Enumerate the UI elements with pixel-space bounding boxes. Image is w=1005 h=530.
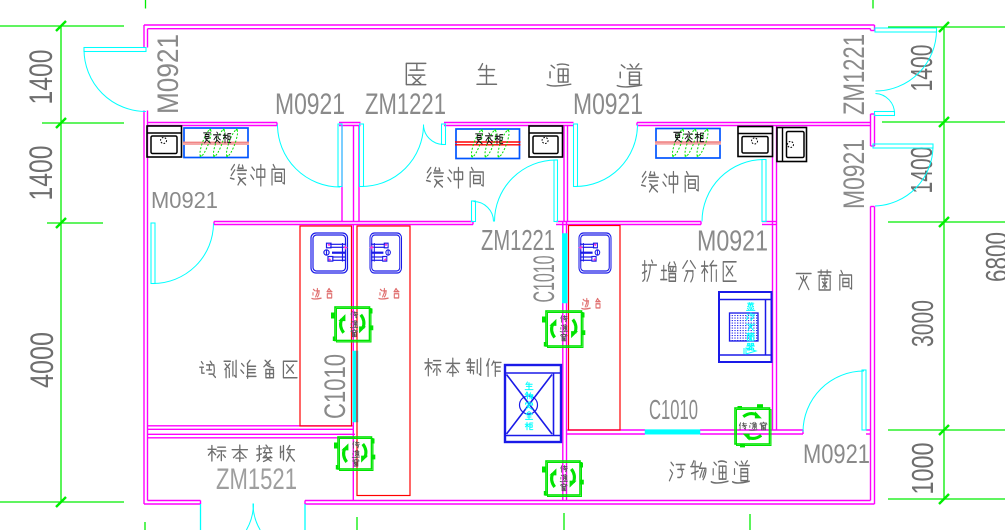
svg-text:M0921: M0921 — [803, 439, 870, 469]
svg-text:C1010: C1010 — [319, 354, 352, 419]
svg-text:1400: 1400 — [904, 45, 939, 92]
svg-text:4000: 4000 — [24, 332, 60, 388]
svg-text:1400: 1400 — [23, 146, 59, 201]
svg-text:C1010: C1010 — [528, 256, 561, 303]
svg-text:M0921: M0921 — [573, 88, 643, 121]
svg-text:3000: 3000 — [905, 300, 940, 347]
svg-text:ZM1221: ZM1221 — [481, 225, 555, 257]
svg-text:C1010: C1010 — [649, 394, 698, 425]
svg-text:1400: 1400 — [23, 50, 59, 105]
svg-text:M0921: M0921 — [838, 139, 871, 209]
svg-text:ZM1521: ZM1521 — [216, 463, 297, 496]
svg-text:M0921: M0921 — [152, 34, 185, 114]
svg-text:1000: 1000 — [905, 443, 940, 495]
svg-text:6800: 6800 — [979, 232, 1005, 282]
svg-text:M0921: M0921 — [151, 187, 218, 213]
svg-text:M0921: M0921 — [697, 226, 768, 258]
svg-text:ZM1221: ZM1221 — [365, 88, 446, 121]
svg-text:M0921: M0921 — [275, 88, 345, 121]
svg-text:ZM1221: ZM1221 — [838, 34, 871, 115]
svg-text:1400: 1400 — [904, 147, 939, 194]
